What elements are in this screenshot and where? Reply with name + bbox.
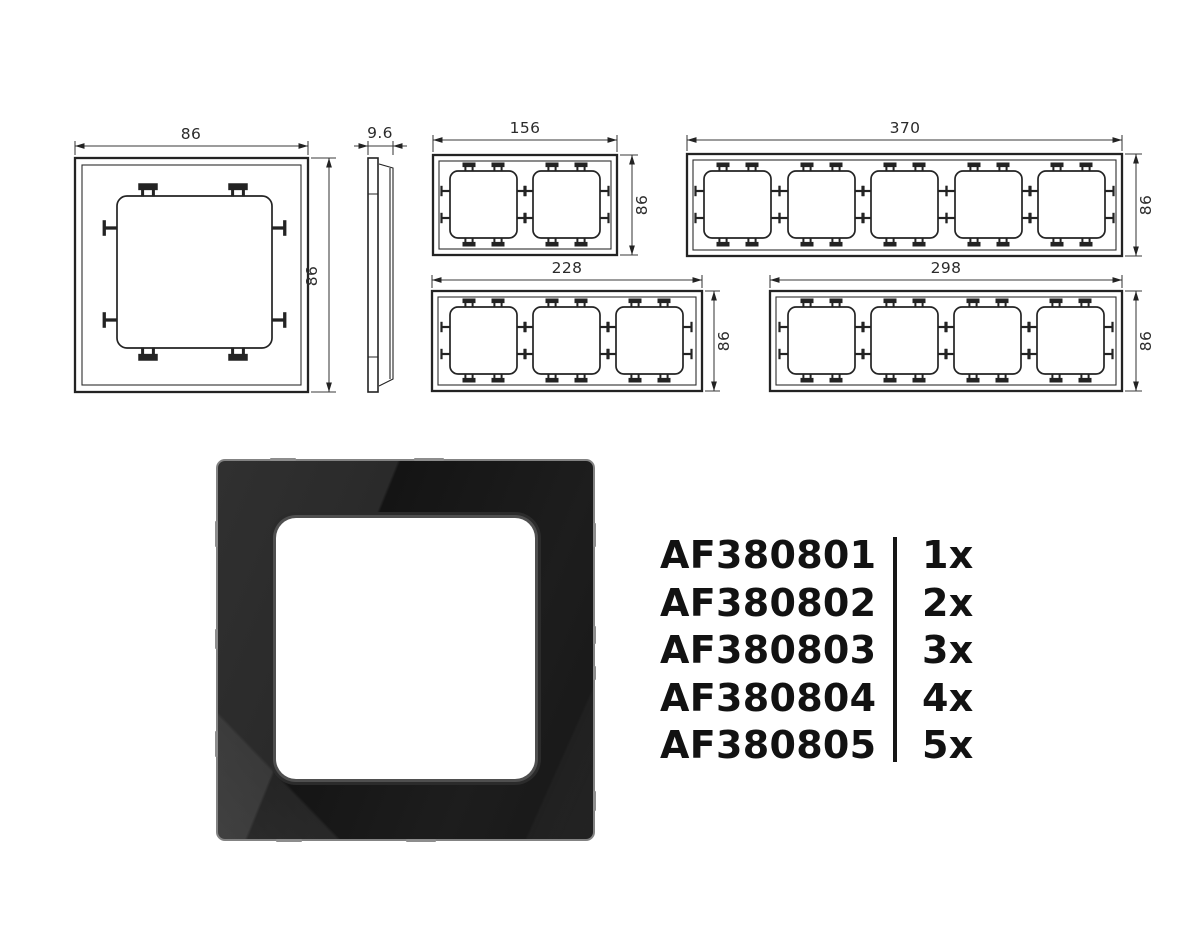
dim-label-two-gang-width: 156 — [510, 119, 541, 137]
product-model: AF380803 — [660, 627, 876, 675]
product-model-column: AF380801 AF380802 AF380803 AF380804 AF38… — [660, 532, 876, 770]
product-quantity: 1x — [922, 532, 974, 580]
dim-label-single-height: 86 — [303, 266, 321, 287]
edge-clip-mark — [215, 731, 218, 757]
product-quantity-column: 1x 2x 3x 4x 5x — [922, 532, 974, 770]
product-quantity: 4x — [922, 675, 974, 723]
four-gang-frame-drawing: 298 86 — [770, 259, 1155, 391]
edge-clip-mark — [593, 626, 596, 644]
product-quantity: 5x — [922, 722, 974, 770]
dim-label-four-gang-width: 298 — [931, 259, 962, 277]
edge-clip-mark — [593, 523, 596, 547]
edge-clip-mark — [270, 458, 296, 461]
dim-label-four-gang-height: 86 — [1137, 331, 1155, 352]
technical-drawings: 86 86 9.6 — [0, 0, 1200, 440]
dim-label-three-gang-height: 86 — [715, 331, 733, 352]
side-profile-drawing: 9.6 — [354, 124, 407, 392]
dim-width-four-gang: 298 — [770, 259, 1122, 288]
single-frame-front-drawing: 86 86 — [75, 125, 336, 392]
product-model: AF380805 — [660, 722, 876, 770]
dim-width-five-gang: 370 — [687, 119, 1122, 151]
edge-clip-mark — [406, 839, 436, 842]
product-model: AF380801 — [660, 532, 876, 580]
edge-clip-mark — [215, 629, 218, 649]
dim-label-side-depth: 9.6 — [367, 124, 393, 142]
five-gang-frame-drawing: 370 86 — [687, 119, 1155, 256]
dim-width-single: 86 — [75, 125, 308, 155]
product-quantity: 3x — [922, 627, 974, 675]
dim-height-two-gang: 86 — [620, 155, 651, 255]
three-gang-frame-drawing: 228 86 — [432, 259, 733, 391]
dim-width-three-gang: 228 — [432, 259, 702, 288]
product-model: AF380804 — [660, 675, 876, 723]
dim-label-three-gang-width: 228 — [552, 259, 583, 277]
dim-height-three-gang: 86 — [705, 291, 733, 391]
dim-label-two-gang-height: 86 — [633, 195, 651, 216]
list-divider — [893, 537, 897, 762]
product-photo — [216, 459, 595, 841]
two-gang-frame-drawing: 156 86 — [433, 119, 651, 255]
edge-clip-mark — [414, 458, 444, 461]
product-model: AF380802 — [660, 580, 876, 628]
dim-width-two-gang: 156 — [433, 119, 617, 152]
spec-sheet: 86 86 9.6 — [0, 0, 1200, 933]
edge-clip-mark — [593, 666, 596, 680]
edge-clip-mark — [276, 839, 302, 842]
edge-clip-mark — [593, 791, 596, 811]
dim-label-five-gang-height: 86 — [1137, 195, 1155, 216]
dim-height-four-gang: 86 — [1125, 291, 1155, 391]
product-photo-opening — [276, 518, 535, 779]
dim-depth-side: 9.6 — [354, 124, 407, 155]
dim-height-five-gang: 86 — [1125, 154, 1155, 256]
dim-label-single-width: 86 — [181, 125, 202, 143]
product-quantity: 2x — [922, 580, 974, 628]
dim-label-five-gang-width: 370 — [890, 119, 921, 137]
edge-clip-mark — [215, 521, 218, 547]
